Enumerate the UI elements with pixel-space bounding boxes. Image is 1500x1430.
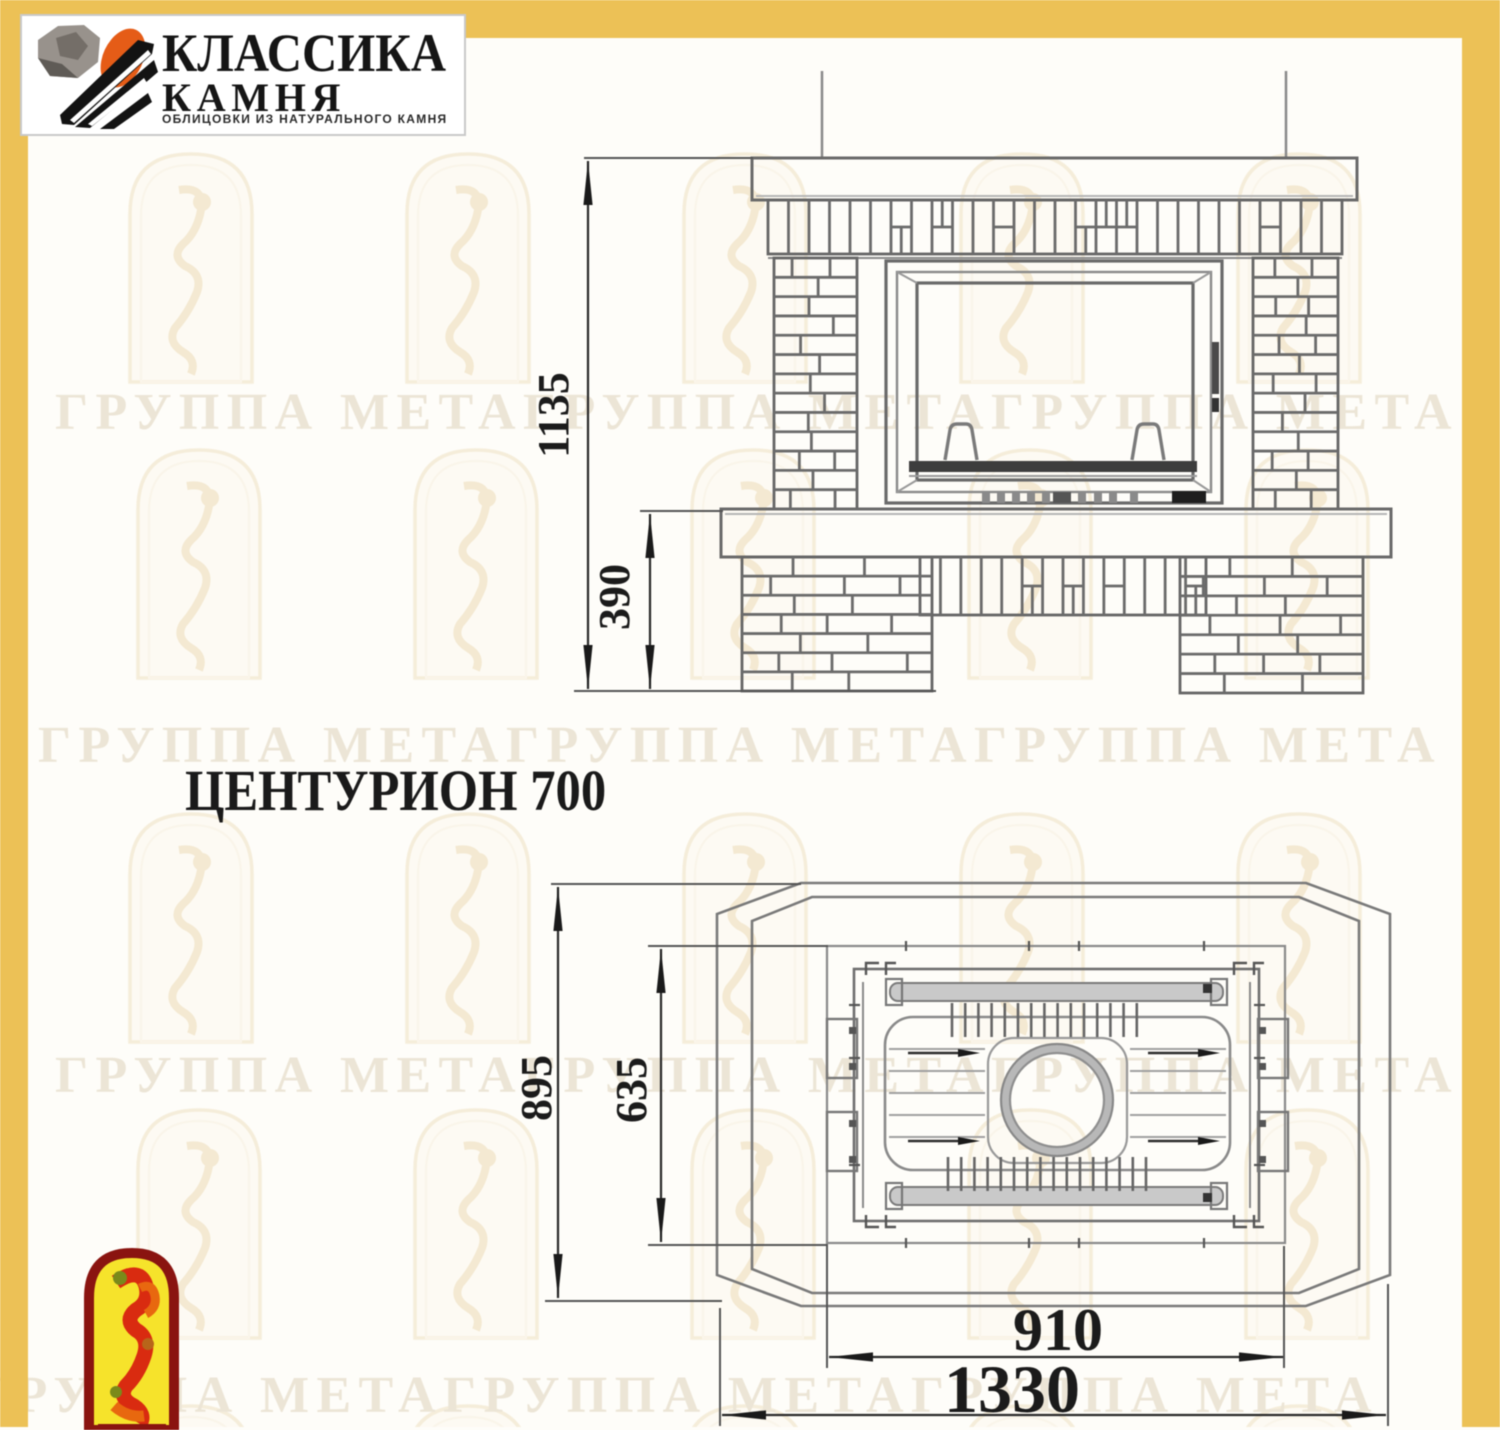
- svg-text:1135: 1135: [529, 372, 578, 458]
- svg-text:390: 390: [590, 564, 639, 630]
- svg-text:895: 895: [512, 1055, 561, 1121]
- svg-text:635: 635: [607, 1057, 656, 1123]
- svg-text:1330: 1330: [944, 1351, 1080, 1427]
